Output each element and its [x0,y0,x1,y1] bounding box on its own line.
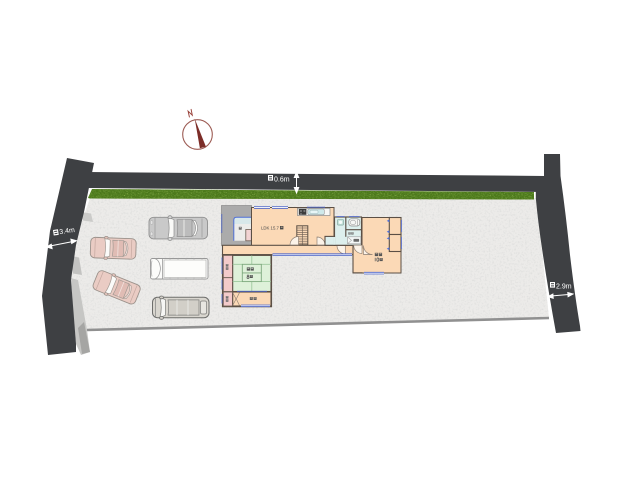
svg-text:0.6m: 0.6m [274,177,290,184]
svg-text:LDK 15.7: LDK 15.7 [261,226,280,231]
svg-text:2.9m: 2.9m [556,284,572,291]
